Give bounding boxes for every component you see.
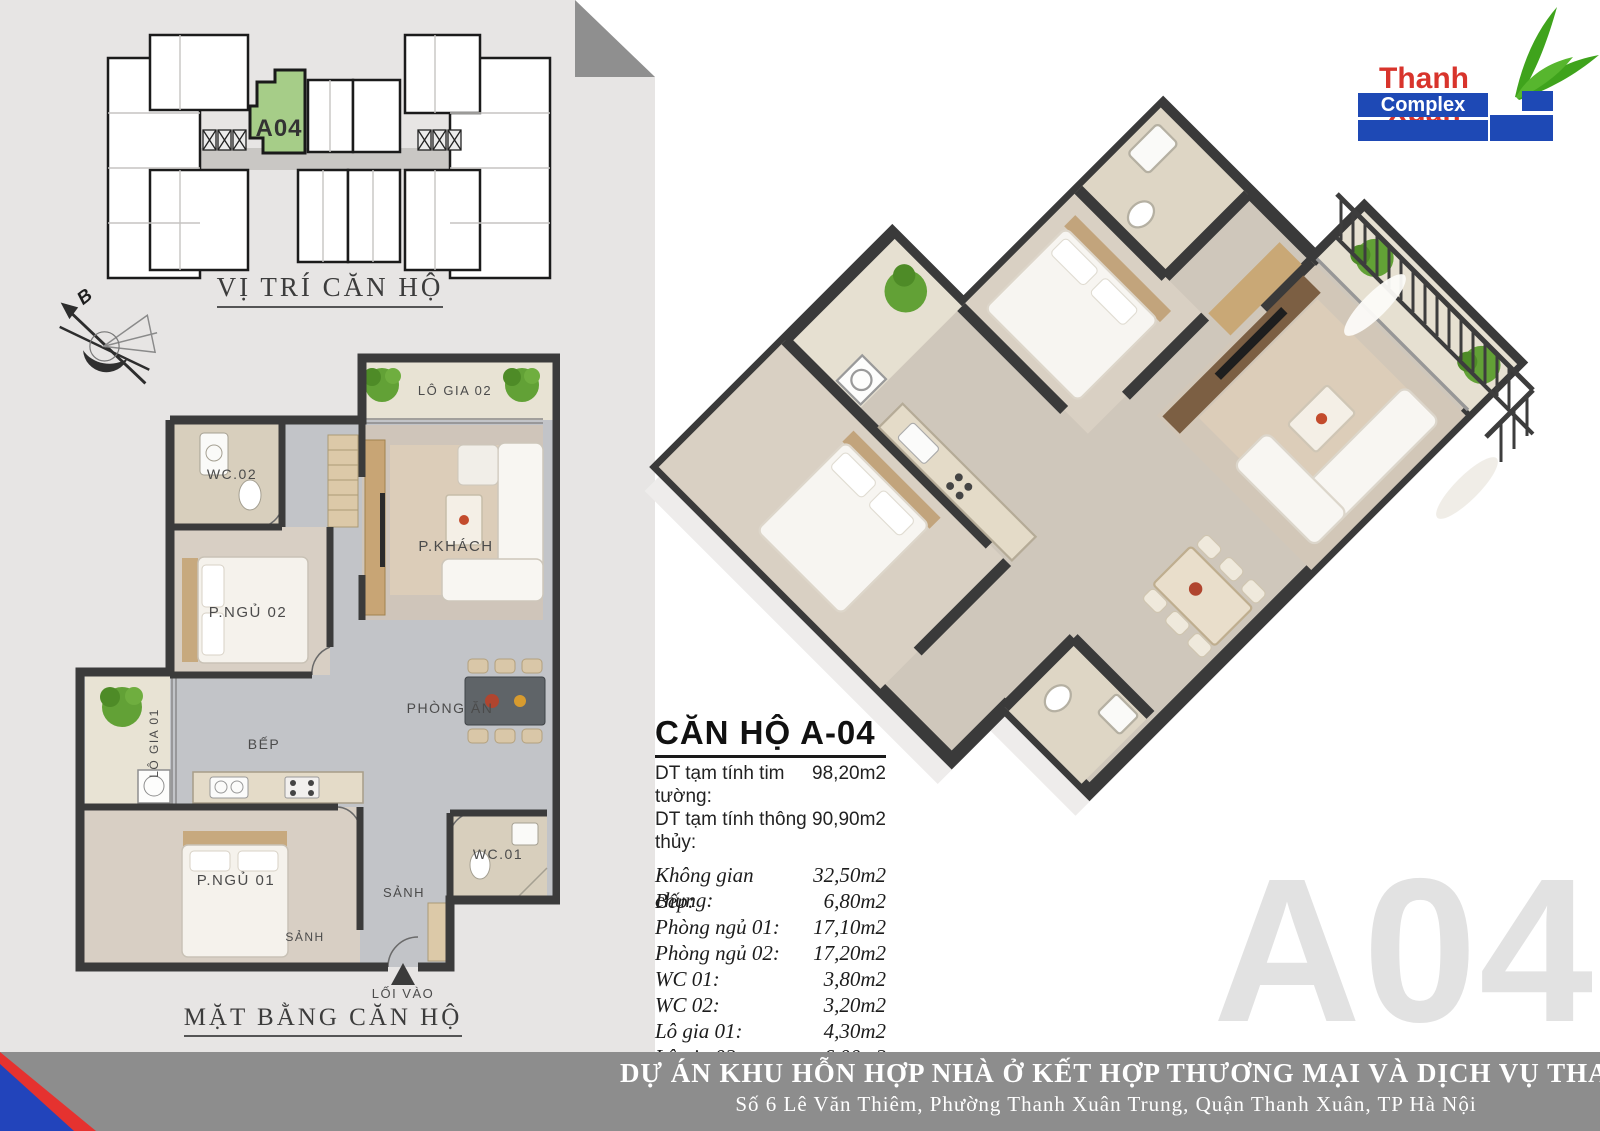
area-row: Phòng ngủ 01:17,10m2 [655, 915, 886, 941]
svg-text:LỐI VÀO: LỐI VÀO [372, 986, 435, 1001]
unit-block [405, 170, 480, 270]
curtain [1429, 450, 1505, 526]
apartment-3d-render [640, 80, 1590, 820]
logo-sub-text: Complex [1381, 94, 1465, 117]
footer-corner-accent [0, 1052, 120, 1131]
floor-plan-caption: MẶT BẰNG CĂN HỘ [184, 1004, 463, 1037]
folded-corner [575, 0, 655, 77]
project-address: Số 6 Lê Văn Thiêm, Phường Thanh Xuân Tru… [620, 1092, 1592, 1117]
area-row: WC 01:3,80m2 [655, 967, 886, 993]
gross-area-label: DT tạm tính tim tường: [655, 762, 812, 808]
svg-text:B: B [73, 286, 96, 309]
svg-text:P.NGỦ 01: P.NGỦ 01 [197, 871, 275, 889]
gross-area-value: 98,20m2 [812, 762, 886, 808]
brochure-page: A04 B VỊ TRÍ CĂN HỘ [0, 0, 1600, 1131]
logo-bar-bottom [1358, 120, 1488, 141]
unit-block [353, 80, 400, 152]
net-area-label: DT tạm tính thông thủy: [655, 808, 812, 854]
logo-block-large [1490, 115, 1553, 141]
apartment-info-box: CĂN HỘ A-04 DT tạm tính tim tường: 98,20… [655, 714, 886, 1071]
svg-text:P.NGỦ 02: P.NGỦ 02 [209, 603, 287, 621]
svg-text:SẢNH: SẢNH [285, 929, 324, 944]
unit-a04-label: A04 [255, 115, 302, 142]
svg-text:LÔ GIA 01: LÔ GIA 01 [146, 708, 161, 778]
svg-text:WC.02: WC.02 [207, 466, 257, 482]
logo-complex-bar: Complex [1358, 93, 1488, 117]
svg-text:BẾP: BẾP [248, 736, 281, 752]
thanh-xuan-logo: Thanh Xuan Complex [1350, 5, 1600, 155]
apartment-title: CĂN HỘ A-04 [655, 714, 886, 758]
svg-text:SẢNH: SẢNH [383, 885, 425, 900]
unit-block [150, 35, 248, 110]
logo-block-small [1522, 91, 1553, 111]
area-row: Không gian chung:32,50m2 [655, 863, 886, 889]
unit-block [405, 35, 480, 113]
footer-bar: DỰ ÁN KHU HỖN HỢP NHÀ Ở KẾT HỢP THƯƠNG M… [0, 1052, 1600, 1131]
unit-block [348, 170, 400, 262]
site-plan-caption: VỊ TRÍ CĂN HỘ [217, 272, 444, 308]
net-area-value: 90,90m2 [812, 808, 886, 854]
area-row: WC 02:3,20m2 [655, 993, 886, 1019]
svg-text:PHÒNG ĂN: PHÒNG ĂN [407, 700, 494, 716]
unit-block [150, 170, 248, 270]
project-name: DỰ ÁN KHU HỖN HỢP NHÀ Ở KẾT HỢP THƯƠNG M… [620, 1058, 1592, 1089]
unit-watermark: A04 [1213, 848, 1595, 1053]
svg-text:LÔ GIA 02: LÔ GIA 02 [418, 383, 492, 398]
floor-plan-diagram: LÔ GIA 02 WC.02 P.NGỦ 02 P.KHÁCH LÔ GIA … [60, 345, 560, 1005]
svg-text:WC.01: WC.01 [473, 846, 523, 862]
area-row: Phòng ngủ 02:17,20m2 [655, 941, 886, 967]
area-row: Lô gia 01:4,30m2 [655, 1019, 886, 1045]
site-plan-diagram: A04 [85, 18, 565, 303]
svg-text:P.KHÁCH: P.KHÁCH [418, 538, 493, 555]
